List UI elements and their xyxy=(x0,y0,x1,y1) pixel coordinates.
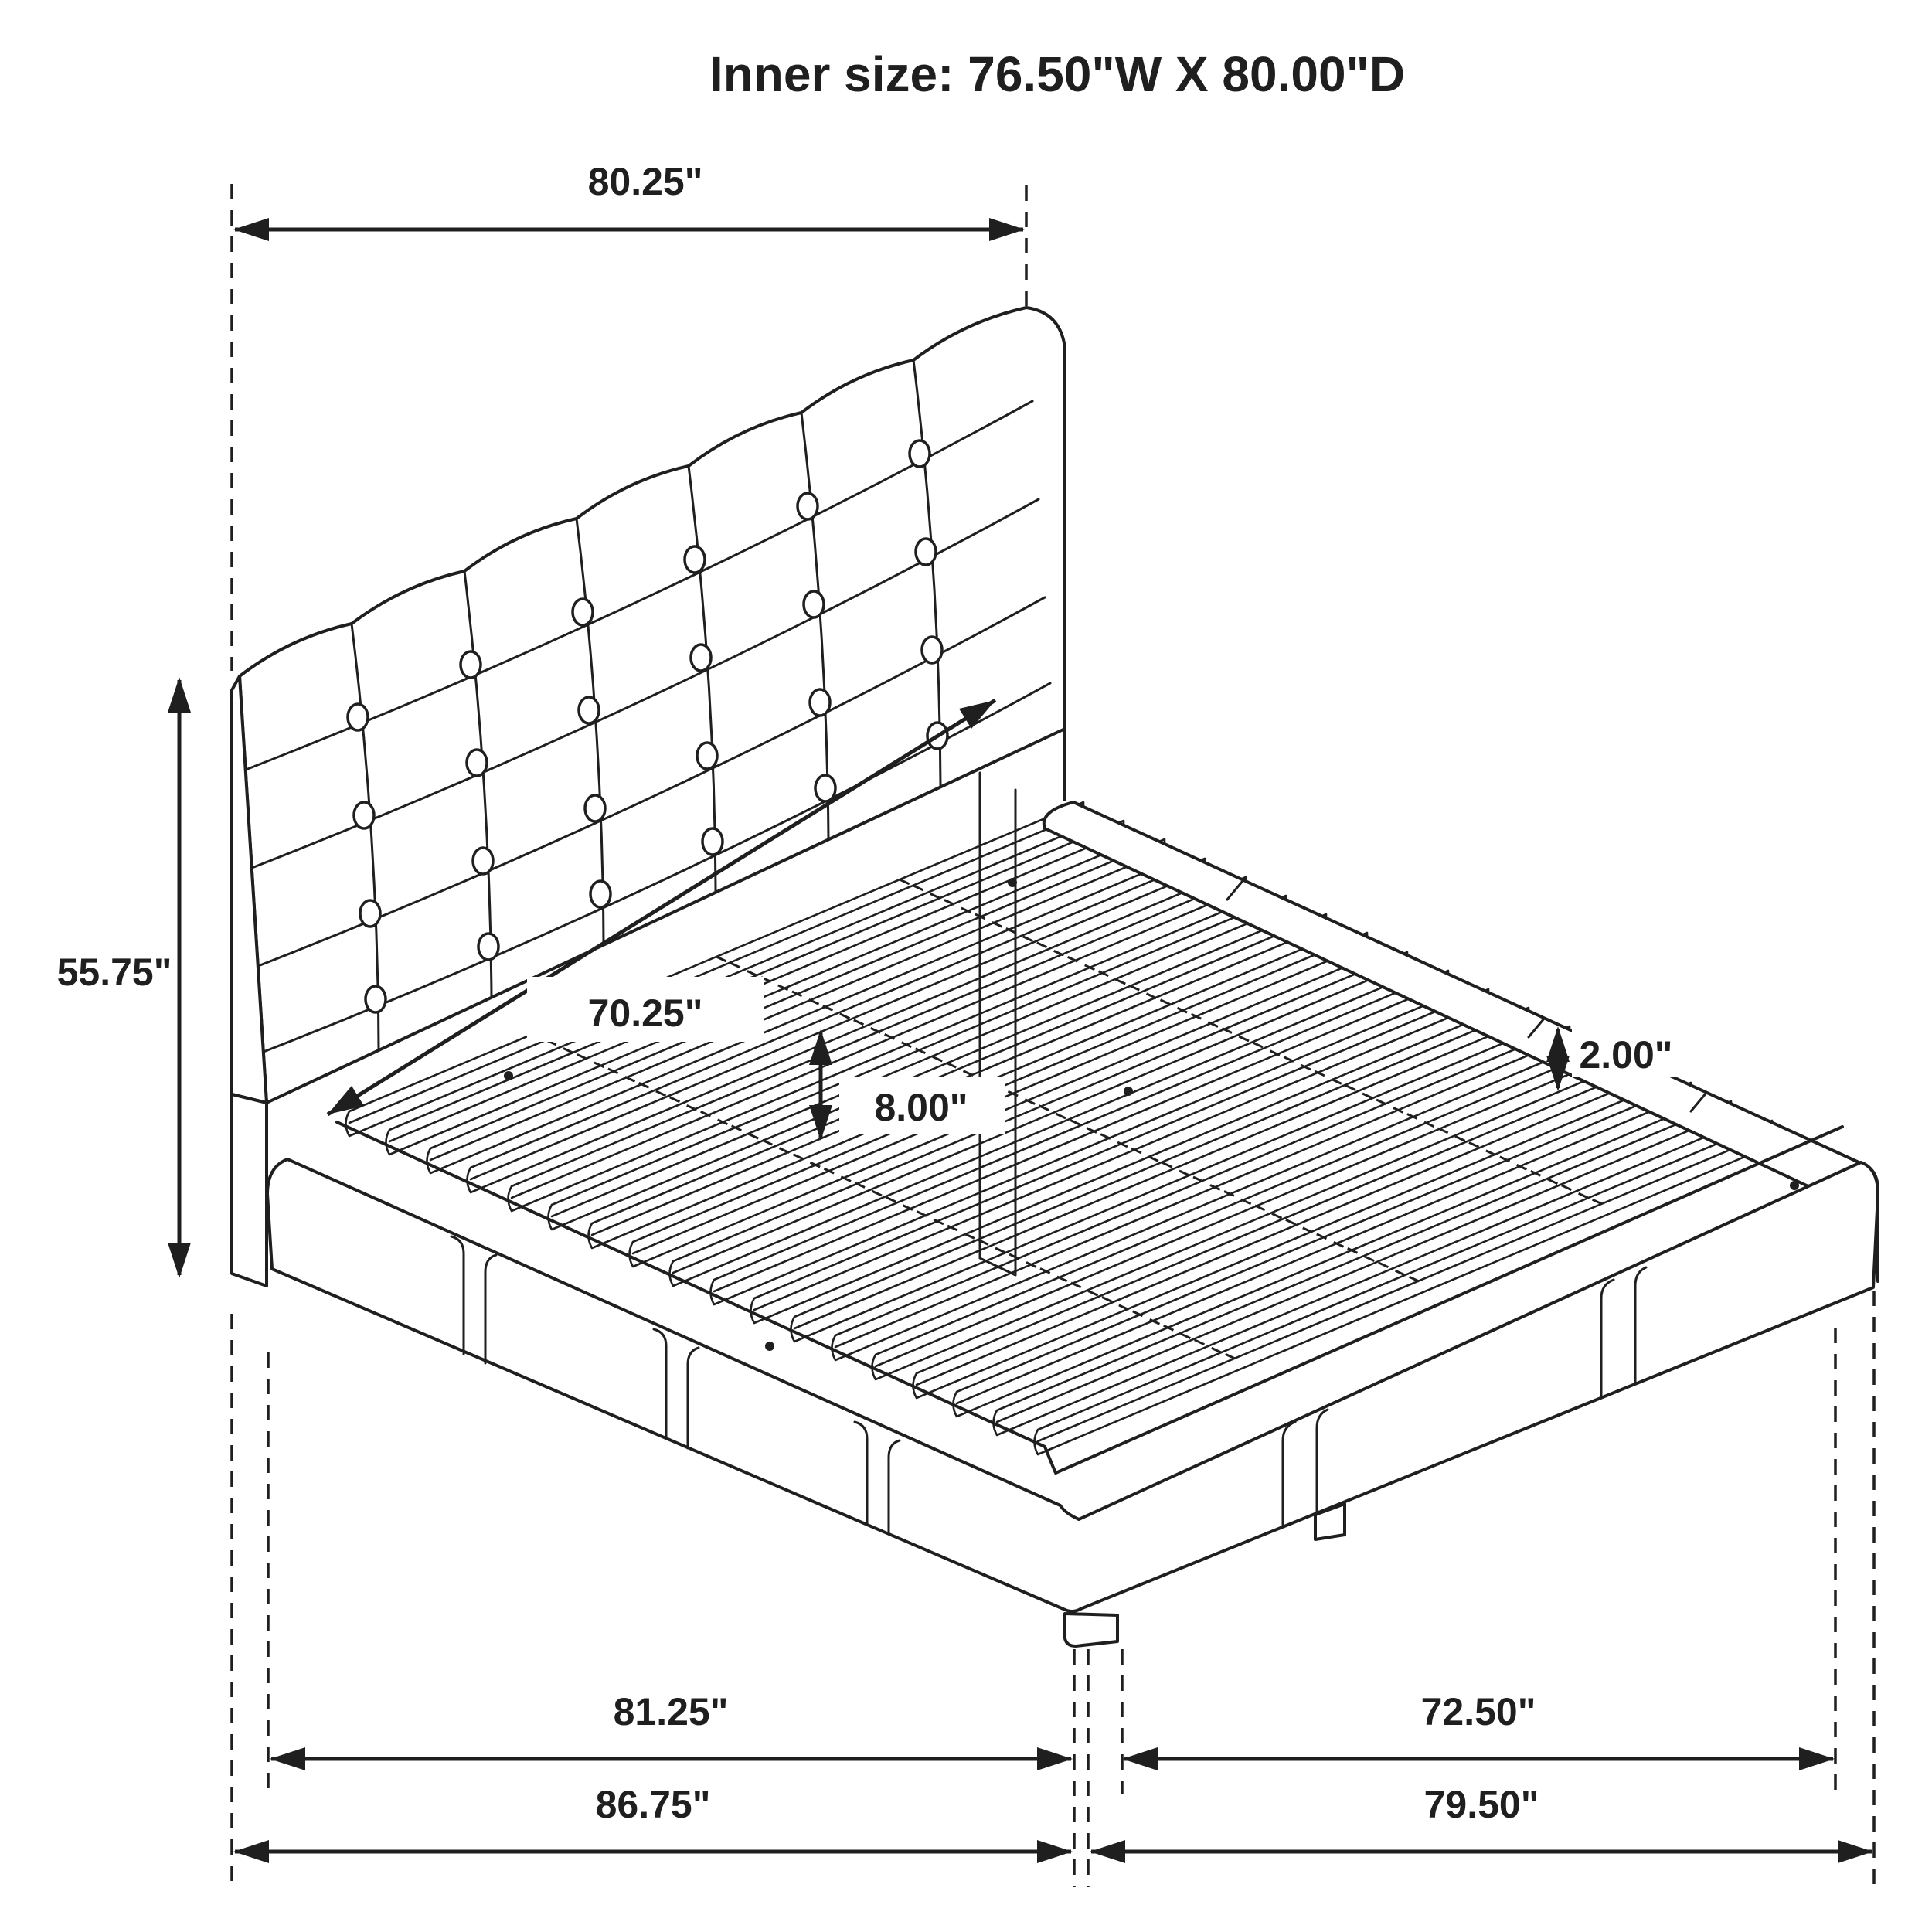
tufting-button xyxy=(697,743,717,769)
dim-overall-depth: 79.50" xyxy=(1090,1783,1873,1863)
tufting-button xyxy=(804,591,824,617)
dim-label-slat-thickness: 2.00" xyxy=(1579,1033,1672,1077)
dim-headboard-height: 55.75" xyxy=(57,677,191,1278)
arrowhead-icon xyxy=(168,1243,191,1278)
tufting-button xyxy=(702,828,723,855)
tufting-button xyxy=(916,539,936,565)
arrowhead-icon xyxy=(1838,1840,1873,1863)
arrowhead-icon xyxy=(1037,1747,1073,1770)
arrowhead-icon xyxy=(328,1086,364,1114)
dim-label-slat-area-width: 70.25" xyxy=(588,992,703,1035)
arrowhead-icon xyxy=(1122,1747,1158,1770)
tufting-button xyxy=(473,848,493,874)
tufting-button xyxy=(360,900,380,927)
arrowhead-icon xyxy=(1090,1840,1125,1863)
arrowhead-icon xyxy=(233,218,269,241)
tufting-button xyxy=(810,689,830,716)
tufting-button xyxy=(573,599,593,625)
tufting-button xyxy=(685,546,705,573)
tufting-button xyxy=(922,637,942,663)
tufting-button xyxy=(478,934,498,960)
arrowhead-icon xyxy=(233,1840,269,1863)
arrowhead-icon xyxy=(168,677,191,713)
arrowhead-icon xyxy=(989,218,1025,241)
headboard-left-leg xyxy=(232,1094,267,1286)
tufting-button xyxy=(461,651,481,678)
tufting-button xyxy=(815,775,835,801)
dim-label-platform-height: 8.00" xyxy=(874,1086,968,1129)
dim-label-overall-depth: 79.50" xyxy=(1424,1783,1539,1826)
arrowhead-icon xyxy=(1799,1747,1835,1770)
dim-label-base-depth-inner: 72.50" xyxy=(1421,1690,1536,1733)
dim-label-headboard-height: 55.75" xyxy=(57,951,172,994)
diagram-title: Inner size: 76.50"W X 80.00"D xyxy=(709,46,1405,102)
tufting-button xyxy=(467,750,487,776)
rail-face xyxy=(267,1159,1878,1611)
tufting-button xyxy=(348,704,368,730)
dim-label-overall-length: 86.75" xyxy=(596,1783,711,1826)
tufting-button xyxy=(585,795,605,821)
dim-base-depth-inner: 72.50" xyxy=(1122,1690,1835,1770)
slat xyxy=(549,896,1287,1230)
far-side-rail xyxy=(1043,799,1878,1281)
dim-label-base-length-inner: 81.25" xyxy=(614,1690,729,1733)
dim-base-length-inner: 81.25" xyxy=(270,1690,1073,1770)
tufting-button xyxy=(354,802,374,828)
bed-dimension-diagram: Inner size: 76.50"W X 80.00"D xyxy=(0,0,1932,1932)
tufting-button xyxy=(590,881,611,907)
arrowhead-icon xyxy=(1037,1840,1073,1863)
tufting-button xyxy=(366,986,386,1012)
arrowhead-icon xyxy=(270,1747,305,1770)
dim-overall-length: 86.75" xyxy=(233,1783,1073,1863)
tufting-button xyxy=(910,440,930,467)
front-corner-leg xyxy=(1065,1614,1117,1646)
tufting-button xyxy=(691,645,711,671)
tufting-button xyxy=(798,493,818,519)
tufting-button xyxy=(579,697,599,723)
dim-label-headboard-width: 80.25" xyxy=(588,160,703,203)
dim-headboard-width: 80.25" xyxy=(233,160,1025,241)
